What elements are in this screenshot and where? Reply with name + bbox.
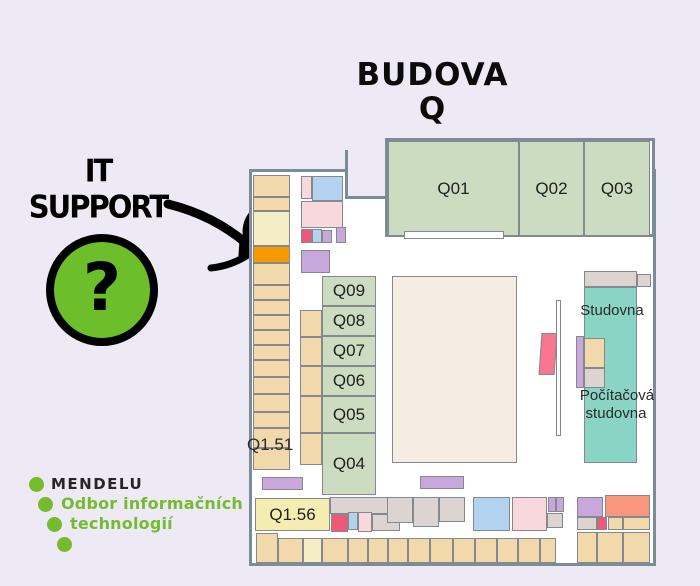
building-title-line2: Q <box>290 92 575 126</box>
logo-dept-line2: technologií <box>70 514 173 533</box>
building-title: BUDOVA Q <box>290 58 575 126</box>
callout-line2: SUPPORT <box>8 189 188 225</box>
floorplan-notch <box>345 150 387 199</box>
callout-line1: IT <box>8 153 188 189</box>
logo-dot-icon <box>29 477 44 492</box>
logo-dept-line1: Odbor informačních <box>61 494 243 513</box>
logo-brand: MENDELU <box>51 475 143 493</box>
floorplan-top-wing <box>385 138 655 237</box>
building-title-line1: BUDOVA <box>290 58 575 92</box>
logo-dot-icon <box>47 517 62 532</box>
logo-dot-icon <box>38 497 53 512</box>
question-badge: ? <box>46 234 158 346</box>
it-support-poster: BUDOVA Q IT SUPPORT ? Q01Q02Q03Q09Q08Q07… <box>0 0 700 586</box>
question-mark-icon: ? <box>83 255 121 321</box>
logo-dot-icon <box>57 537 72 552</box>
it-support-callout: IT SUPPORT <box>8 153 188 225</box>
